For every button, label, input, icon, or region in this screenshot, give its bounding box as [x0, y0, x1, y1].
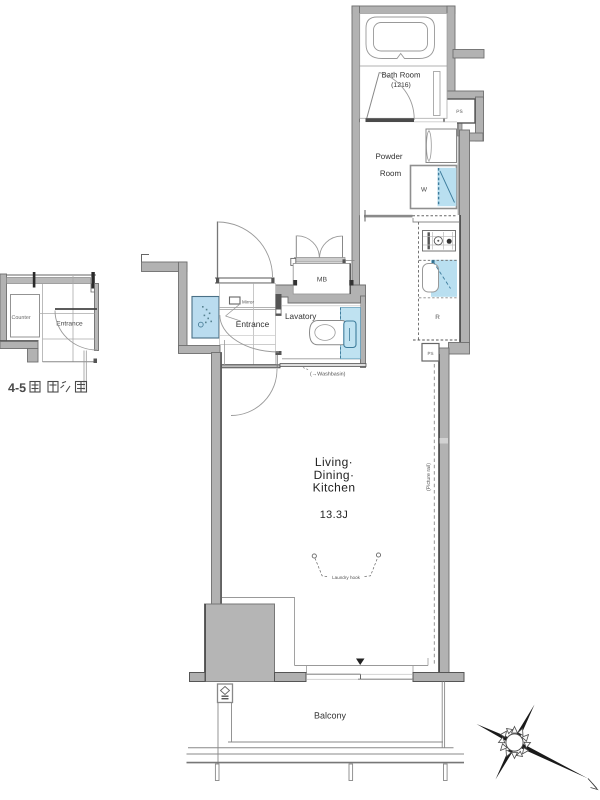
svg-text:Mirror: Mirror	[242, 300, 254, 305]
svg-text:Laundry hook: Laundry hook	[332, 575, 361, 580]
svg-text:Bath Room: Bath Room	[381, 71, 420, 80]
svg-text:Kitchen: Kitchen	[313, 481, 356, 495]
svg-text:4-5: 4-5	[8, 381, 26, 395]
svg-text:MB: MB	[317, 277, 328, 284]
svg-text:W: W	[421, 187, 428, 194]
svg-text:(→Washbasin): (→Washbasin)	[310, 372, 346, 378]
svg-text:R: R	[435, 314, 440, 321]
svg-text:Counter: Counter	[12, 315, 31, 321]
svg-text:Living·: Living·	[315, 455, 353, 469]
svg-text:(Picture rail): (Picture rail)	[426, 463, 432, 491]
svg-text:PS: PS	[427, 351, 433, 356]
svg-text:Powder: Powder	[375, 152, 402, 161]
svg-text:Lavatory: Lavatory	[285, 312, 317, 321]
svg-text:PS: PS	[456, 109, 462, 115]
svg-text:Balcony: Balcony	[314, 711, 347, 721]
svg-text:Entrance: Entrance	[56, 321, 83, 328]
svg-text:13.3J: 13.3J	[320, 509, 348, 521]
svg-text:Entrance: Entrance	[236, 319, 270, 329]
svg-text:Room: Room	[380, 169, 402, 178]
